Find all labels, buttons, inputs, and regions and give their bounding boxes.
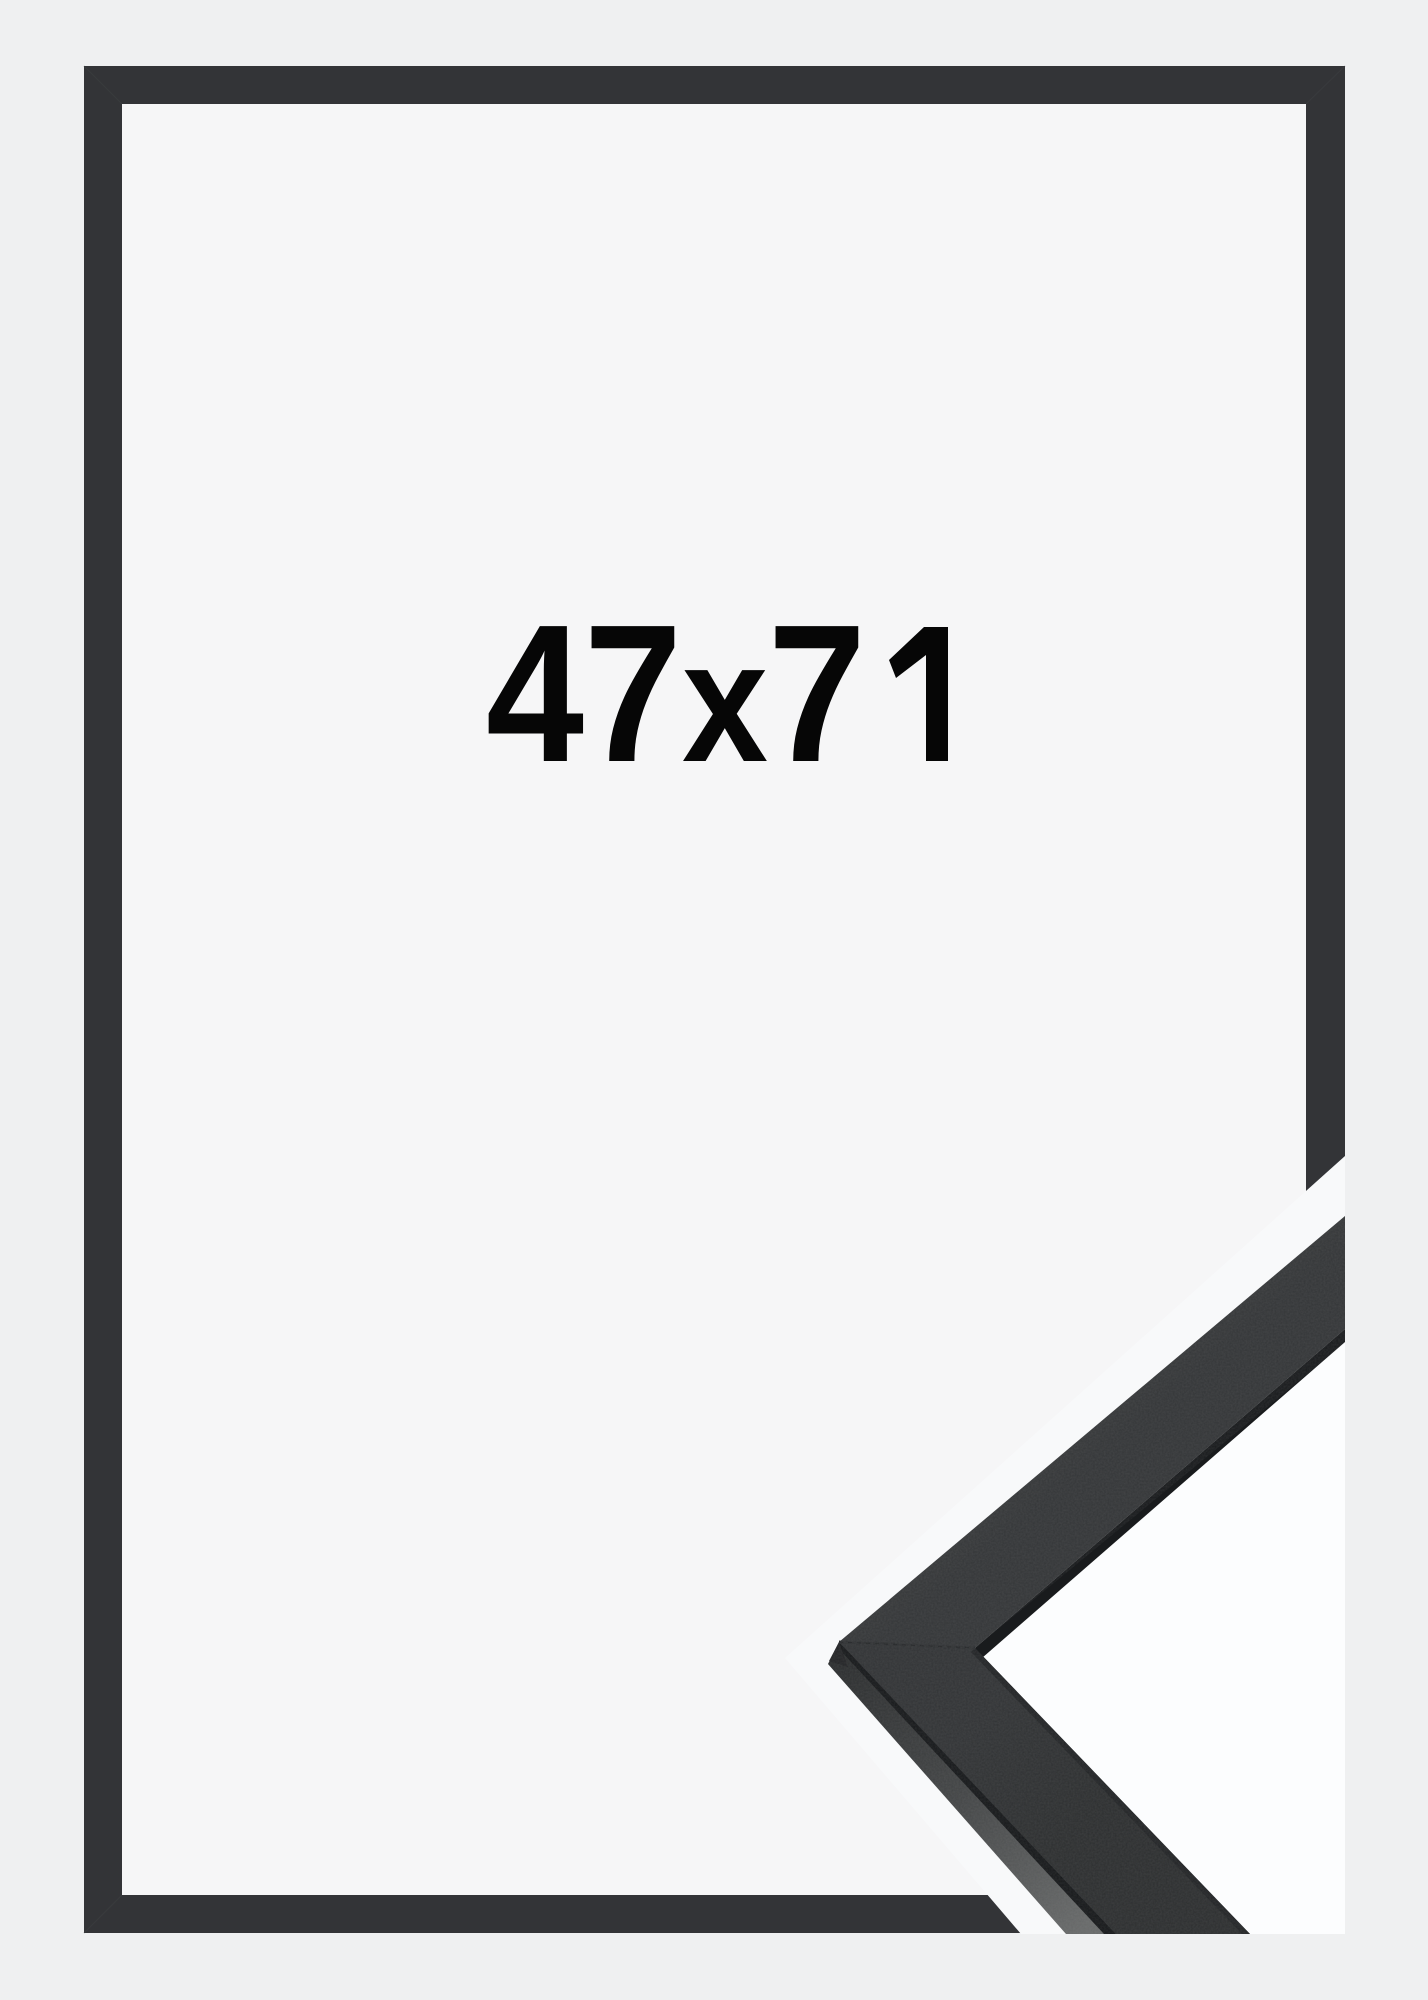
svg-text:47x7: 47x7 — [486, 584, 866, 803]
